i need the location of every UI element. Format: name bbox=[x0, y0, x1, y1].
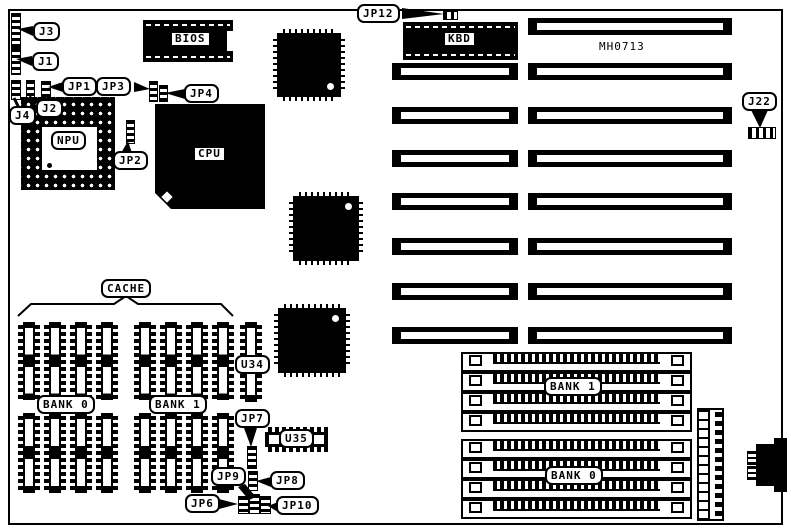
label-jp9: JP9 bbox=[211, 467, 246, 486]
tail-jp6 bbox=[219, 499, 238, 509]
tail-jp4 bbox=[165, 89, 185, 99]
tail-jp12 bbox=[402, 8, 444, 19]
label-cpu: CPU bbox=[193, 146, 226, 162]
label-jp6: JP6 bbox=[185, 494, 220, 513]
tail-j1 bbox=[16, 56, 32, 66]
tail-j22 bbox=[751, 110, 768, 128]
label-j4: J4 bbox=[9, 106, 36, 125]
label-cache-bank0: BANK 0 bbox=[37, 395, 95, 414]
tail-jp7 bbox=[244, 428, 257, 447]
label-jp1: JP1 bbox=[62, 77, 97, 96]
label-jp7: JP7 bbox=[235, 409, 270, 428]
label-j3: J3 bbox=[33, 22, 60, 41]
label-j2: J2 bbox=[36, 99, 63, 118]
label-cache-bank1: BANK 1 bbox=[149, 395, 207, 414]
label-jp10: JP10 bbox=[276, 496, 319, 515]
label-jp3: JP3 bbox=[96, 77, 131, 96]
label-jp12: JP12 bbox=[357, 4, 400, 23]
label-j1: J1 bbox=[32, 52, 59, 71]
label-bios: BIOS bbox=[170, 31, 211, 47]
label-jp2: JP2 bbox=[113, 151, 148, 170]
label-simm-bank0: BANK 0 bbox=[545, 466, 603, 485]
label-j22: J22 bbox=[742, 92, 777, 111]
label-jp4: JP4 bbox=[184, 84, 219, 103]
label-u34: U34 bbox=[235, 355, 270, 374]
motherboard-diagram: J3 J1 JP1 JP3 JP4 J4 J2 NPU JP2 BIOS CPU… bbox=[0, 0, 791, 531]
label-npu: NPU bbox=[51, 131, 86, 150]
tail-jp1 bbox=[48, 82, 63, 92]
label-jp8: JP8 bbox=[270, 471, 305, 490]
cache-brace bbox=[18, 296, 233, 316]
tail-j3 bbox=[18, 26, 33, 36]
tail-jp3 bbox=[134, 82, 150, 92]
tail-jp8 bbox=[256, 477, 271, 487]
label-cache: CACHE bbox=[101, 279, 151, 298]
label-kbd: KBD bbox=[443, 31, 476, 47]
label-simm-bank1: BANK 1 bbox=[544, 377, 602, 396]
label-model: MH0713 bbox=[599, 40, 645, 53]
label-u35: U35 bbox=[279, 429, 314, 448]
tail-jp9 bbox=[238, 484, 256, 500]
